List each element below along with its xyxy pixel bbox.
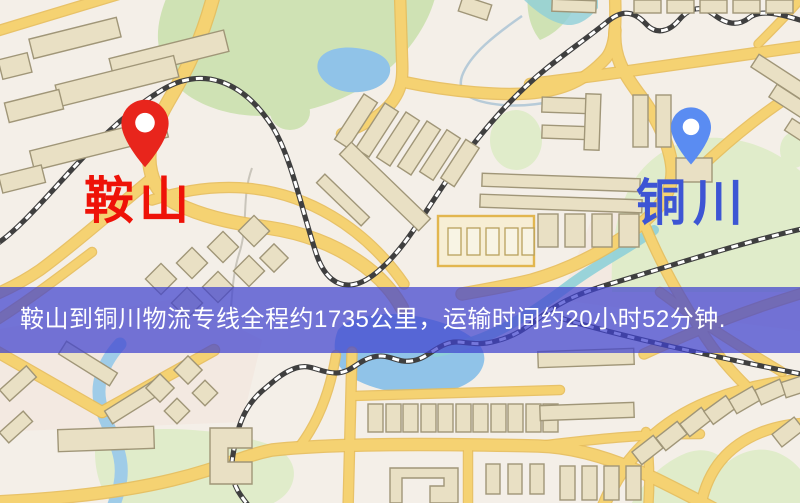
map-image xyxy=(0,0,800,503)
destination-marker-label: 铜川 xyxy=(636,178,750,228)
route-info-banner: 鞍山到铜川物流专线全程约1735公里，运输时间约20小时52分钟. xyxy=(0,287,800,353)
origin-marker-label: 鞍山 xyxy=(84,176,194,226)
route-info-text: 鞍山到铜川物流专线全程约1735公里，运输时间约20小时52分钟. xyxy=(0,306,726,335)
red-pin-icon xyxy=(118,98,172,169)
blue-pin-icon xyxy=(668,106,714,166)
map-canvas: 鞍山 铜川 鞍山到铜川物流专线全程约1735公里，运输时间约20小时52分钟. xyxy=(0,0,800,503)
